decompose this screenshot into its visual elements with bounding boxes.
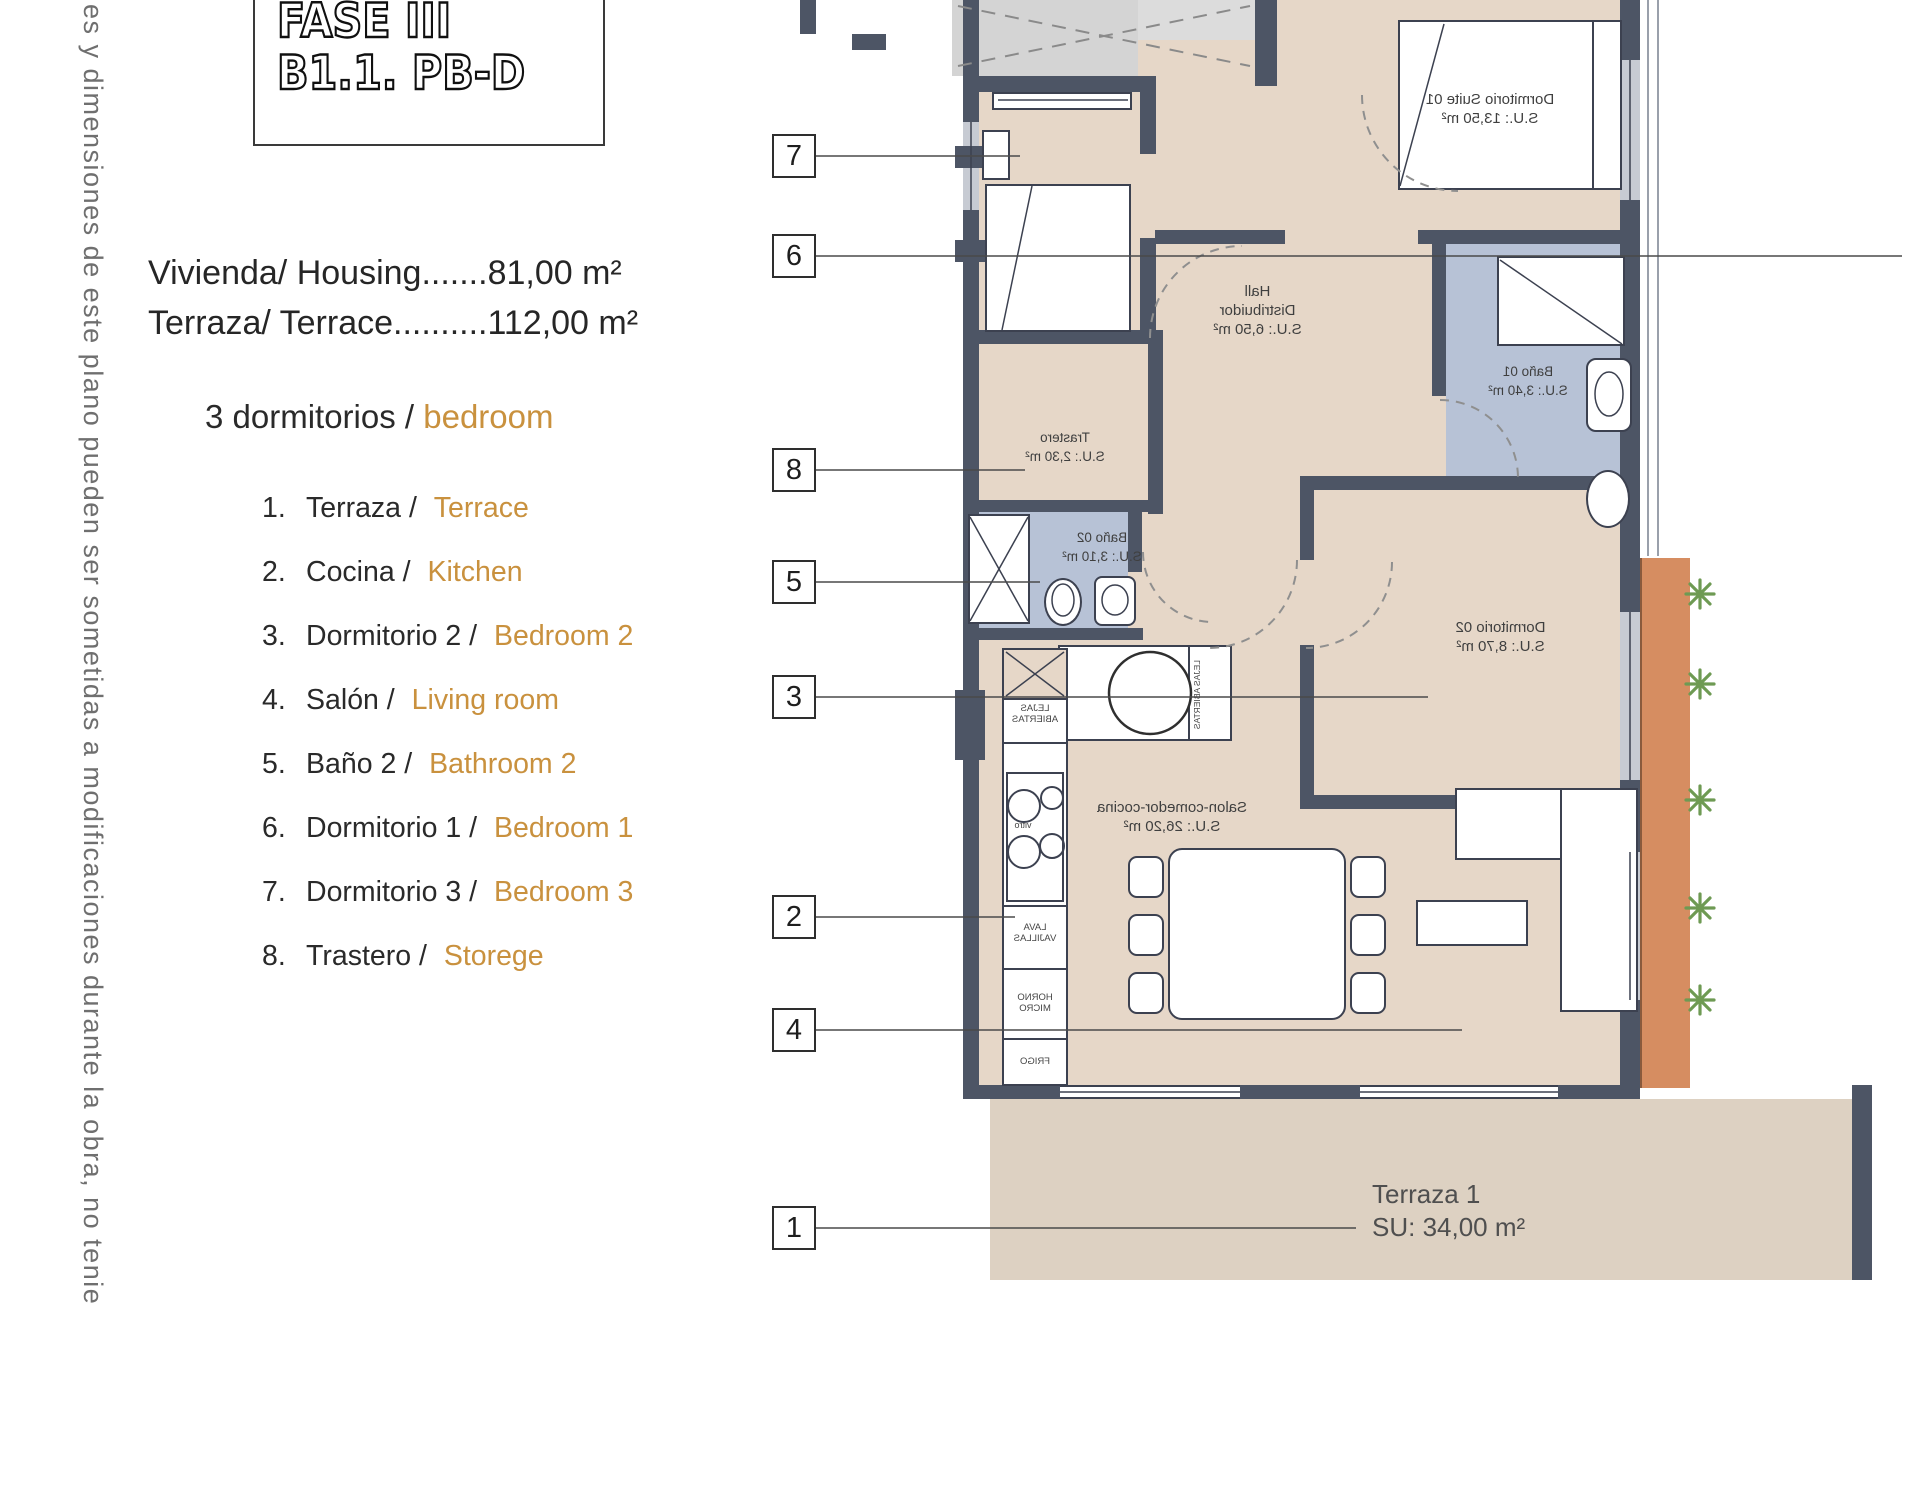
dorm02-door-arc (1306, 562, 1392, 648)
room-name: Hall (1185, 282, 1330, 301)
plants (1686, 580, 1714, 1014)
label-terraza1: Terraza 1 SU: 34,00 m² (1372, 1178, 1612, 1244)
room-area: S.U.: 6,50 m² (1185, 320, 1330, 339)
plant-icon (1686, 986, 1714, 1014)
room-area: S.U.: 13,50 m² (1395, 109, 1585, 128)
laundry-machine-circle (1109, 652, 1191, 734)
room-name: Trastero (995, 428, 1135, 447)
label-trastero: Trastero S.U.: 2,30 m² (995, 428, 1135, 466)
window-lines (971, 60, 1630, 1092)
label-bano01: Baño 01 S.U.: 3,40 m² (1458, 362, 1598, 400)
floorplan-page: { "side_note": "es y dimensiones de este… (0, 0, 1920, 1280)
plant-icon (1686, 580, 1714, 608)
bano01-door-arc (1440, 400, 1518, 478)
room-name: Dormitorio Suite 01 (1395, 90, 1585, 109)
plant-icon (1686, 894, 1714, 922)
void-dashed-x (958, 6, 1250, 66)
label-salon: Salon-comedor-cocina S.U.: 26,20 m² (1072, 798, 1272, 836)
salon-door-arc (1209, 560, 1297, 648)
room-name-2: Distribuidor (1185, 301, 1330, 320)
plan-linework (0, 0, 1920, 1280)
room-name: Terraza 1 (1372, 1178, 1612, 1211)
room-area: S.U.: 8,70 m² (1418, 637, 1583, 656)
room-area: S.U.: 26,20 m² (1072, 817, 1272, 836)
hob-burners (1008, 787, 1064, 868)
room-name: Baño 02 (1032, 528, 1172, 547)
room-name: Dormitorio 02 (1418, 618, 1583, 637)
plant-icon (1686, 786, 1714, 814)
balcony-rail-lines (1648, 0, 1658, 556)
callout-leader-lines (816, 156, 1902, 1228)
plant-icon (1686, 670, 1714, 698)
room-area: S.U.: 2,30 m² (995, 447, 1135, 466)
room-name: Baño 01 (1458, 362, 1598, 381)
label-bano02: Baño 02 S.U.: 3,10 m² (1032, 528, 1172, 566)
room-area: SU: 34,00 m² (1372, 1211, 1612, 1244)
fixture-details (1052, 372, 1623, 616)
room-name: Salon-comedor-cocina (1072, 798, 1272, 817)
label-dorm02: Dormitorio 02 S.U.: 8,70 m² (1418, 618, 1583, 656)
label-suite01: Dormitorio Suite 01 S.U.: 13,50 m² (1395, 90, 1585, 128)
label-hall: Hall Distribuidor S.U.: 6,50 m² (1185, 282, 1330, 339)
room-area: S.U.: 3,10 m² (1032, 547, 1172, 566)
room-area: S.U.: 3,40 m² (1458, 381, 1598, 400)
floor-plan: Dormitorio Suite 01 S.U.: 13,50 m² Hall … (0, 0, 1920, 1280)
